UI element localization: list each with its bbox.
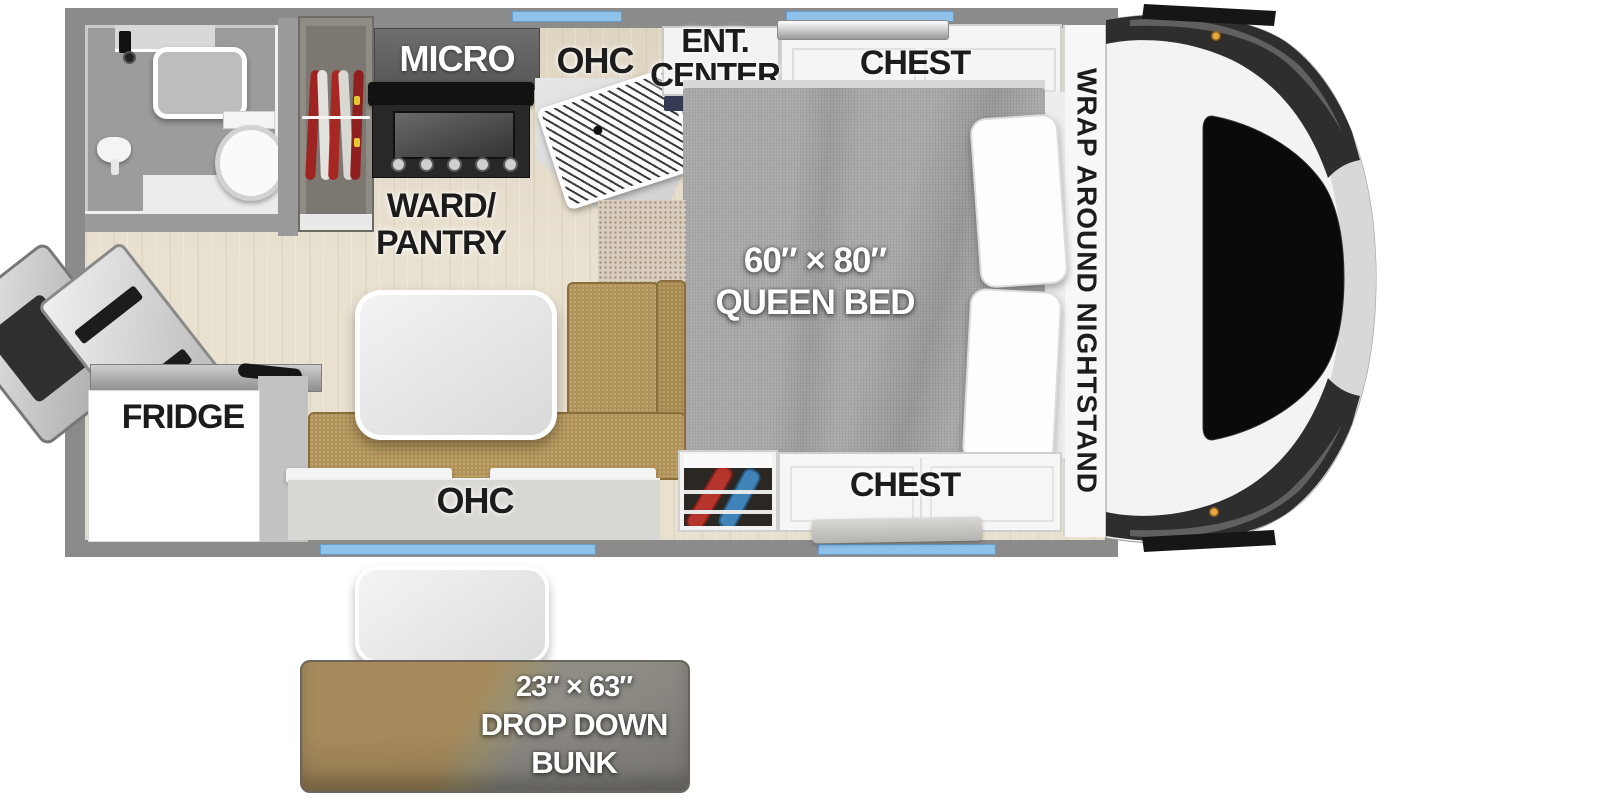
microwave-cabinet: MICRO <box>374 28 540 90</box>
window-strip <box>320 544 596 555</box>
ent-label-line1: ENT. <box>650 24 780 58</box>
step-tread <box>74 285 144 344</box>
range-hood <box>368 82 534 106</box>
marker-light-icon <box>1210 508 1218 516</box>
ward-label-line1: WARD/ <box>366 188 516 225</box>
wardrobe-cabinet <box>298 16 374 232</box>
ohc-kitchen-label: OHC <box>545 40 645 82</box>
chrome-trim <box>777 20 949 40</box>
bunk-label: 23″ × 63″ DROP DOWN BUNK <box>460 668 688 782</box>
utility-shelf <box>684 490 772 494</box>
stowed-table <box>355 566 549 664</box>
bathroom-sink <box>153 47 247 119</box>
bunk-size-label: 23″ × 63″ <box>460 668 688 706</box>
faucet-icon <box>119 31 131 53</box>
bunk-label-line2: DROP DOWN <box>460 706 688 744</box>
window-strip <box>818 544 996 555</box>
window-strip <box>512 11 622 22</box>
ward-label-line2: PANTRY <box>366 225 516 262</box>
bed-name-label: QUEEN BED <box>640 282 990 324</box>
ohc-dinette-label: OHC <box>415 480 535 522</box>
bathroom <box>85 25 278 214</box>
utility-shelf <box>684 510 772 514</box>
wardrobe-shelf <box>300 214 372 230</box>
marker-light-icon <box>1212 32 1220 40</box>
ward-pantry-label: WARD/ PANTRY <box>366 188 516 262</box>
toilet <box>215 125 287 201</box>
hanger-icon <box>354 138 360 147</box>
oven-window <box>393 111 515 159</box>
floorplan-canvas: MICRO OHC ENT. CENTER CHEST WRAP AROUND … <box>0 0 1600 804</box>
chest-rear-label: CHEST <box>790 466 1020 505</box>
sink-drain-icon <box>592 125 603 136</box>
bed-size-label: 60″ × 80″ <box>640 240 990 282</box>
burner-knob <box>503 157 518 172</box>
interior-wall <box>85 214 278 232</box>
fridge-label: FRIDGE <box>98 398 268 437</box>
chest-front-label: CHEST <box>795 44 1035 83</box>
utility-cabinet <box>678 450 778 532</box>
bunk-label-line3: BUNK <box>460 744 688 782</box>
bed-label: 60″ × 80″ QUEEN BED <box>640 240 990 324</box>
truck-front-cap <box>1090 0 1390 562</box>
dinette-table <box>355 290 557 440</box>
carpet-patch <box>598 200 686 286</box>
hanger-icon <box>354 96 360 105</box>
closet-rod <box>302 116 370 119</box>
faucet-icon <box>123 51 136 64</box>
floor-mat <box>812 517 982 544</box>
burner-knob <box>391 157 406 172</box>
shower-head-icon <box>111 159 119 175</box>
microwave-label: MICRO <box>400 38 515 80</box>
burner-knob <box>419 157 434 172</box>
burner-knob <box>475 157 490 172</box>
interior-wall <box>278 18 298 236</box>
cooktop-range <box>372 104 530 178</box>
utility-cavity <box>684 468 772 526</box>
burner-knob <box>447 157 462 172</box>
